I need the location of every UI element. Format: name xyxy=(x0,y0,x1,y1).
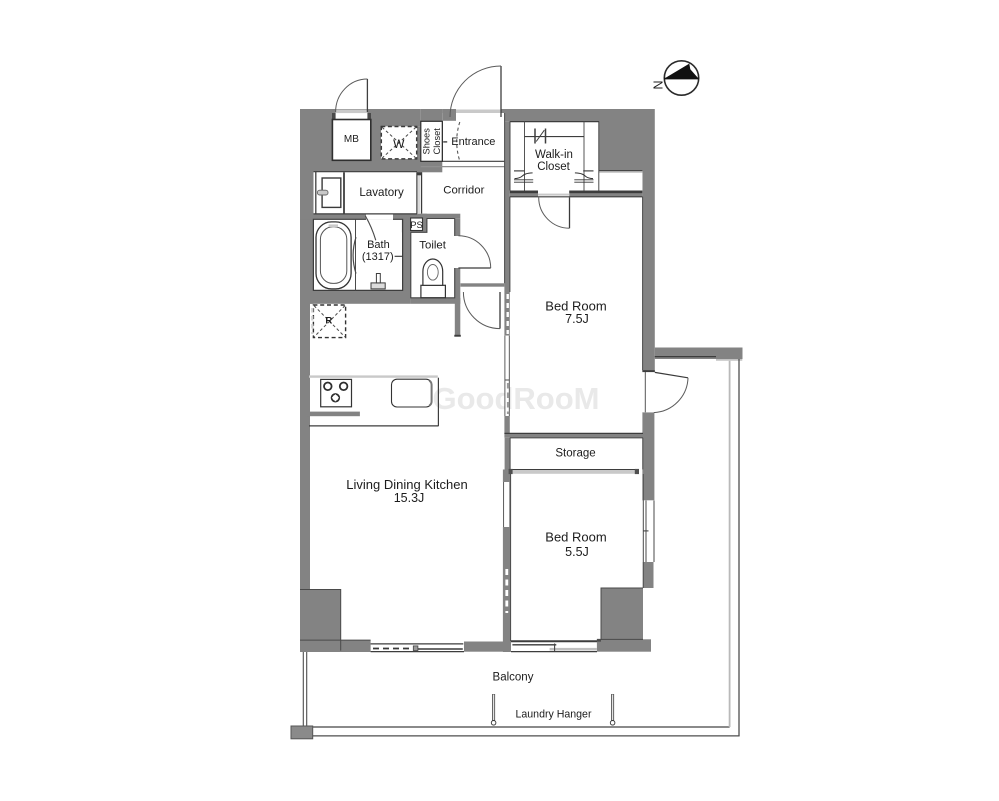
svg-text:15.3J: 15.3J xyxy=(394,491,425,505)
svg-text:Lavatory: Lavatory xyxy=(359,186,404,199)
svg-text:Storage: Storage xyxy=(555,447,595,459)
svg-text:MB: MB xyxy=(344,134,359,145)
svg-text:Corridor: Corridor xyxy=(443,185,484,197)
svg-text:Closet: Closet xyxy=(432,128,442,155)
svg-text:Walk-in: Walk-in xyxy=(535,149,573,161)
svg-text:Closet: Closet xyxy=(537,161,570,173)
svg-text:Living Dining Kitchen: Living Dining Kitchen xyxy=(346,477,467,492)
svg-text:Bed Room: Bed Room xyxy=(545,530,606,545)
svg-text:PS: PS xyxy=(410,219,423,230)
svg-text:Balcony: Balcony xyxy=(493,672,534,684)
svg-text:Entrance: Entrance xyxy=(451,136,495,148)
svg-text:Laundry Hanger: Laundry Hanger xyxy=(516,708,592,720)
svg-text:Shoes: Shoes xyxy=(421,128,431,155)
svg-text:R: R xyxy=(325,316,332,327)
svg-text:GoodRooM: GoodRooM xyxy=(432,381,599,416)
svg-text:W: W xyxy=(393,137,405,151)
svg-text:Toilet: Toilet xyxy=(419,240,446,252)
svg-text:Bath: Bath xyxy=(367,239,390,251)
svg-text:7.5J: 7.5J xyxy=(565,312,589,326)
svg-text:N: N xyxy=(652,80,666,89)
svg-text:(1317): (1317) xyxy=(362,251,394,263)
svg-text:5.5J: 5.5J xyxy=(565,545,589,559)
